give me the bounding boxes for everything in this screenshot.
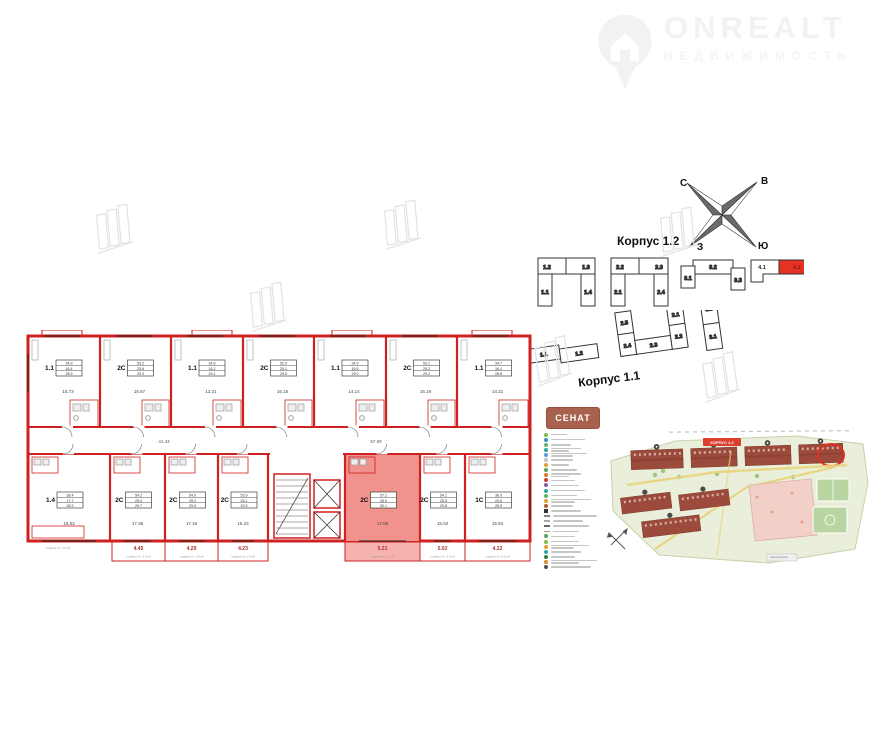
svg-text:25.4: 25.4: [135, 499, 142, 503]
svg-text:1.1: 1.1: [474, 365, 483, 372]
svg-text:14.21: 14.21: [492, 389, 504, 394]
svg-text:16.2: 16.2: [209, 367, 216, 371]
svg-text:29.8: 29.8: [440, 504, 447, 508]
svg-text:30.1: 30.1: [380, 504, 387, 508]
legend-icon: [544, 525, 550, 527]
legend-icon: [544, 463, 548, 467]
legend-icon: [544, 443, 548, 447]
svg-text:38.4: 38.4: [67, 493, 74, 497]
svg-text:25.5: 25.5: [440, 499, 447, 503]
svg-text:лоджия пл. 2.6 м²: лоджия пл. 2.6 м²: [370, 555, 394, 559]
legend-icon: [544, 520, 550, 522]
legend-item: [544, 452, 602, 457]
svg-text:2.4: 2.4: [657, 290, 666, 296]
svg-text:29.7: 29.7: [135, 504, 142, 508]
svg-text:34.7: 34.7: [495, 361, 502, 365]
section-block-4: 4.14.2: [751, 260, 804, 282]
balcony: 5.02лоджия пл. 2.6 м²: [420, 541, 465, 561]
svg-text:5.02: 5.02: [438, 546, 448, 552]
svg-text:2.5: 2.5: [620, 320, 628, 327]
svg-text:34.8: 34.8: [209, 361, 216, 365]
svg-text:14.14: 14.14: [348, 389, 360, 394]
legend-icon: [544, 478, 548, 482]
svg-text:29.3: 29.3: [137, 372, 144, 376]
compass-north-label: С: [680, 178, 687, 189]
svg-text:29.5: 29.5: [280, 372, 287, 376]
legend-icon: [544, 531, 550, 533]
svg-text:25.2: 25.2: [189, 499, 196, 503]
legend-icon: [544, 448, 548, 452]
svg-text:16.23: 16.23: [237, 521, 249, 526]
svg-text:4.29: 4.29: [187, 546, 197, 552]
svg-text:15.02: 15.02: [437, 521, 449, 526]
svg-text:5.21: 5.21: [378, 546, 388, 552]
svg-text:17.7: 17.7: [67, 499, 74, 503]
svg-text:2С: 2С: [360, 497, 369, 504]
legend-item: [544, 447, 602, 452]
svg-text:29.2: 29.2: [423, 372, 430, 376]
floor-plan: 4.45лоджия пл. 2.6 м²4.29лоджия пл. 2.6 …: [24, 330, 534, 570]
svg-text:2.1: 2.1: [671, 312, 679, 319]
svg-text:4.23: 4.23: [238, 546, 248, 552]
legend-icon: [544, 489, 548, 493]
legend-item: [544, 564, 602, 569]
svg-text:16.4: 16.4: [66, 367, 73, 371]
svg-text:57.2: 57.2: [380, 493, 387, 497]
svg-text:34.9: 34.9: [66, 361, 73, 365]
svg-text:15.94: 15.94: [492, 521, 504, 526]
balcony-highlighted: 5.21лоджия пл. 2.6 м²: [345, 541, 420, 561]
watermark-brand: ONREALT: [664, 12, 854, 43]
siteplan-legend: [544, 432, 602, 570]
balcony: 4.22лоджия пл. 2.6 м²: [465, 541, 530, 561]
svg-text:лоджия пл. 2.6 м²: лоджия пл. 2.6 м²: [46, 546, 70, 550]
svg-text:20.6: 20.6: [495, 499, 502, 503]
svg-text:4.1: 4.1: [758, 265, 766, 271]
svg-text:13.31: 13.31: [205, 389, 217, 394]
legend-item: [544, 544, 602, 549]
svg-text:53.1: 53.1: [423, 361, 430, 365]
watermark-subtitle: НЕДВИЖИМОСТЬ: [664, 49, 854, 63]
legend-icon: [544, 494, 548, 498]
svg-text:16.15: 16.15: [277, 389, 289, 394]
legend-icon: [544, 560, 548, 564]
svg-text:3.2: 3.2: [709, 265, 717, 271]
svg-text:лоджия пл. 2.6 м²: лоджия пл. 2.6 м²: [126, 555, 150, 559]
svg-text:3.3: 3.3: [734, 278, 742, 284]
watermark: ONREALT НЕДВИЖИМОСТЬ: [596, 12, 854, 94]
ghost-sketch: [656, 205, 704, 263]
legend-icon: [544, 483, 548, 487]
svg-text:1.2: 1.2: [543, 265, 551, 271]
building-sections-korpus-1-2: 1.21.31.11.42.22.32.12.43.23.13.34.14.2: [532, 256, 804, 312]
svg-text:57.09: 57.09: [370, 439, 382, 444]
svg-text:16.1: 16.1: [495, 367, 502, 371]
svg-text:2С: 2С: [117, 365, 126, 372]
legend-item: [544, 559, 602, 564]
svg-text:25.3: 25.3: [423, 367, 430, 371]
legend-icon: [544, 540, 548, 544]
svg-text:36.9: 36.9: [495, 493, 502, 497]
section-block-1: 1.21.31.11.4: [538, 258, 595, 306]
developer-logo: СЕНАТ: [546, 407, 600, 429]
svg-text:лоджия пл. 2.6 м²: лоджия пл. 2.6 м²: [231, 555, 255, 559]
svg-text:2С: 2С: [420, 497, 429, 504]
svg-text:КОРПУС 1.2: КОРПУС 1.2: [710, 440, 734, 445]
legend-icon: [544, 438, 548, 442]
svg-text:2.1: 2.1: [614, 290, 622, 296]
svg-text:лоджия пл. 2.6 м²: лоджия пл. 2.6 м²: [179, 555, 203, 559]
svg-text:2.2: 2.2: [675, 334, 683, 341]
legend-icon: [544, 515, 550, 517]
site-plan: КОРПУС 1.2: [597, 427, 873, 572]
legend-item: [544, 498, 602, 503]
legend-icon: [544, 433, 548, 437]
legend-icon: [544, 499, 548, 503]
svg-text:4.45: 4.45: [134, 546, 144, 552]
svg-text:1.1: 1.1: [541, 290, 549, 296]
svg-text:4.22: 4.22: [493, 546, 503, 552]
legend-icon: [544, 534, 548, 538]
svg-text:25.1: 25.1: [241, 499, 248, 503]
legend-icon: [544, 555, 548, 559]
korpus-badge: КОРПУС 1.2: [703, 438, 741, 446]
svg-text:26.9: 26.9: [380, 499, 387, 503]
svg-text:лоджия пл. 2.6 м²: лоджия пл. 2.6 м²: [485, 555, 509, 559]
svg-text:54.1: 54.1: [440, 493, 447, 497]
svg-text:3.1: 3.1: [709, 334, 717, 341]
legend-icon: [544, 453, 548, 457]
legend-icon: [544, 504, 548, 508]
svg-text:1С: 1С: [475, 497, 484, 504]
svg-text:16.19: 16.19: [420, 389, 432, 394]
svg-text:1.1: 1.1: [188, 365, 197, 372]
legend-icon: [544, 468, 548, 472]
svg-text:34.9: 34.9: [352, 361, 359, 365]
svg-text:29.3: 29.3: [241, 504, 248, 508]
svg-text:2.3: 2.3: [649, 342, 657, 349]
svg-text:2.2: 2.2: [616, 265, 624, 271]
svg-text:15.53: 15.53: [63, 521, 75, 526]
svg-text:52.9: 52.9: [280, 361, 287, 365]
svg-text:16.5: 16.5: [352, 367, 359, 371]
section-block-2: 2.22.32.12.4: [611, 258, 668, 306]
svg-text:2С: 2С: [260, 365, 269, 372]
balcony: 4.29лоджия пл. 2.6 м²: [165, 541, 218, 561]
svg-text:16.67: 16.67: [134, 389, 146, 394]
playground: [749, 479, 817, 541]
svg-text:17.38: 17.38: [132, 521, 144, 526]
section-block-3: 3.23.13.3: [681, 260, 745, 290]
ghost-sketch: [699, 350, 747, 408]
svg-text:4.2: 4.2: [793, 265, 801, 271]
legend-icon: [544, 545, 548, 549]
svg-text:1.1: 1.1: [45, 365, 54, 372]
svg-text:3.1: 3.1: [684, 276, 692, 282]
svg-text:1.4: 1.4: [46, 497, 55, 504]
legend-icon: [544, 473, 548, 477]
svg-text:28.3: 28.3: [67, 504, 74, 508]
ghost-sketch: [380, 198, 428, 256]
svg-text:25.6: 25.6: [137, 367, 144, 371]
svg-text:2С: 2С: [169, 497, 178, 504]
svg-text:1.1: 1.1: [331, 365, 340, 372]
ghost-sketch: [531, 334, 579, 392]
svg-text:15.73: 15.73: [62, 389, 74, 394]
svg-text:28.9: 28.9: [66, 372, 73, 376]
svg-text:2С: 2С: [403, 365, 412, 372]
svg-text:29.0: 29.0: [352, 372, 359, 376]
svg-text:1.4: 1.4: [584, 290, 593, 296]
balcony: 4.23лоджия пл. 2.6 м²: [218, 541, 268, 561]
listing-image: ONREALT НЕДВИЖИМОСТЬ С В З Ю Корпус 1.2 …: [0, 0, 875, 730]
legend-icon: [544, 550, 548, 554]
sport-court: [813, 507, 847, 533]
compass-south-label: Ю: [758, 241, 768, 252]
ghost-sketch: [92, 202, 140, 260]
svg-text:54.2: 54.2: [135, 493, 142, 497]
svg-text:53.9: 53.9: [241, 493, 248, 497]
ghost-sketch: [246, 280, 294, 338]
svg-text:17.05: 17.05: [377, 521, 389, 526]
siteplan-north-arrow: [608, 529, 628, 549]
svg-text:17.16: 17.16: [186, 521, 198, 526]
svg-text:28.9: 28.9: [495, 504, 502, 508]
svg-text:53.2: 53.2: [137, 361, 144, 365]
svg-text:54.0: 54.0: [189, 493, 196, 497]
legend-icon: [544, 565, 548, 569]
svg-text:25.1: 25.1: [280, 367, 287, 371]
svg-text:28.8: 28.8: [495, 372, 502, 376]
compass-east-label: В: [761, 176, 768, 187]
watermark-text: ONREALT НЕДВИЖИМОСТЬ: [664, 12, 854, 63]
svg-text:2.3: 2.3: [655, 265, 663, 271]
svg-text:2С: 2С: [115, 497, 124, 504]
svg-text:29.5: 29.5: [189, 504, 196, 508]
sport-court: [817, 479, 849, 501]
svg-text:41.34: 41.34: [158, 439, 170, 444]
svg-text:29.1: 29.1: [209, 372, 216, 376]
balcony: 4.45лоджия пл. 2.6 м²: [112, 541, 165, 561]
watermark-pin-house-icon: [596, 12, 654, 94]
svg-text:лоджия пл. 2.6 м²: лоджия пл. 2.6 м²: [430, 555, 454, 559]
svg-text:1.3: 1.3: [582, 265, 590, 271]
legend-item: [544, 473, 602, 478]
legend-icon: [544, 458, 548, 462]
svg-text:2С: 2С: [221, 497, 230, 504]
legend-icon: [544, 509, 548, 513]
